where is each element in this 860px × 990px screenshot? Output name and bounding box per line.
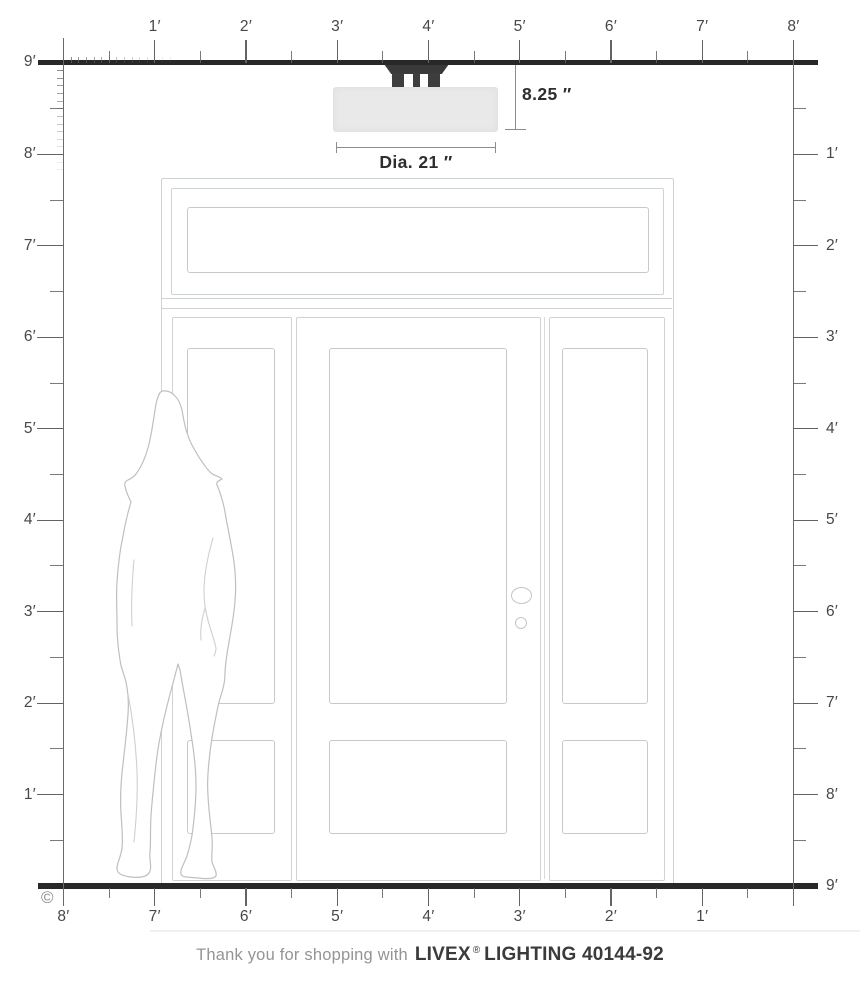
ruler-tick (57, 101, 63, 102)
footer-caption: Thank you for shopping with LIVEX ® LIGH… (0, 944, 860, 966)
ruler-label: 8′ (779, 17, 809, 37)
ruler-tick (170, 57, 171, 63)
ruler-label: 7′ (826, 693, 838, 713)
ruler-tick (793, 291, 806, 292)
ruler-tick (78, 57, 79, 63)
ruler-tick (565, 51, 566, 63)
ruler-tick (50, 840, 63, 841)
ruler-tick (57, 93, 63, 94)
ruler-tick (291, 51, 292, 63)
ruler-tick (337, 888, 338, 906)
ruler-tick (101, 57, 102, 63)
ruler-tick (245, 888, 246, 906)
ruler-tick (565, 888, 566, 898)
ruler-tick (200, 51, 201, 63)
ruler-label: 7′ (140, 907, 170, 927)
ruler-label: 7′ (687, 17, 717, 37)
ruler-tick (37, 428, 63, 429)
right-ruler-floor-label: 9′ (826, 876, 838, 896)
ruler-tick (37, 520, 63, 521)
ruler-tick (793, 565, 806, 566)
page-edge-artifact (150, 930, 860, 932)
ruler-tick (702, 888, 703, 906)
ruler-label: 2′ (596, 907, 626, 927)
ruler-tick (57, 85, 63, 86)
ruler-tick (94, 57, 95, 63)
ruler-tick (37, 794, 63, 795)
ruler-label: 1′ (140, 17, 170, 37)
ruler-label: 5′ (505, 17, 535, 37)
ruler-tick (86, 57, 87, 63)
height-dimension-label: 8.25 ″ (522, 84, 572, 105)
door-upper-panel (329, 348, 507, 704)
ruler-tick (382, 888, 383, 898)
ruler-tick (71, 57, 72, 63)
ruler-tick (37, 245, 63, 246)
ruler-label: 8′ (49, 907, 79, 927)
ruler-tick (793, 245, 818, 246)
ruler-tick (519, 888, 520, 906)
ruler-label: 5′ (826, 510, 838, 530)
left-ruler-line (63, 38, 64, 906)
diameter-dimension-line (336, 147, 496, 148)
ruler-tick (147, 57, 148, 63)
ruler-label: 3′ (322, 17, 352, 37)
person-silhouette (98, 386, 268, 888)
ruler-tick (109, 57, 110, 63)
door-deadbolt-icon (515, 617, 527, 629)
ruler-tick (291, 888, 292, 898)
height-dimension-cap (505, 129, 526, 130)
ruler-tick (656, 51, 657, 63)
ruler-label: 2′ (8, 693, 36, 713)
ruler-tick (57, 78, 63, 79)
ruler-label: 6′ (596, 17, 626, 37)
ruler-label: 4′ (414, 17, 444, 37)
height-dimension-line (515, 65, 516, 130)
footer-thanks-text: Thank you for shopping with (196, 946, 408, 965)
ruler-tick (793, 200, 806, 201)
ruler-tick (154, 57, 155, 63)
ruler-tick (50, 748, 63, 749)
ruler-tick (428, 40, 429, 63)
ruler-tick (57, 169, 63, 170)
ruler-tick (793, 474, 806, 475)
ruler-tick (37, 703, 63, 704)
ruler-tick (57, 139, 63, 140)
ruler-tick (793, 748, 806, 749)
ruler-tick (37, 611, 63, 612)
right-sidelight-window (562, 348, 648, 704)
ruler-tick (50, 474, 63, 475)
transom-divider-line (161, 298, 672, 299)
ruler-tick (57, 124, 63, 125)
ruler-tick (162, 57, 163, 63)
ruler-tick (57, 116, 63, 117)
ruler-tick (50, 200, 63, 201)
ruler-label: 6′ (826, 602, 838, 622)
left-ruler-origin-label: 9′ (8, 52, 36, 72)
ruler-label: 6′ (8, 327, 36, 347)
ruler-tick (793, 520, 818, 521)
copyright-icon: © (41, 888, 54, 908)
ruler-label: 6′ (231, 907, 261, 927)
ruler-tick (793, 840, 806, 841)
door-jamb-line (544, 317, 545, 879)
transom-window (187, 207, 649, 273)
ruler-label: 1′ (826, 144, 838, 164)
ruler-tick (57, 146, 63, 147)
ruler-tick (793, 337, 818, 338)
ruler-label: 5′ (8, 419, 36, 439)
diameter-dimension-label: Dia. 21 ″ (336, 152, 496, 173)
ruler-tick (50, 657, 63, 658)
ruler-tick (793, 794, 818, 795)
person-outline (117, 391, 236, 879)
registered-trademark-icon: ® (473, 945, 480, 956)
door-lower-panel (329, 740, 507, 834)
ruler-tick (382, 51, 383, 63)
ruler-tick (200, 888, 201, 898)
ruler-tick (793, 657, 806, 658)
ruler-tick (109, 888, 110, 898)
ruler-label: 1′ (8, 785, 36, 805)
ruler-tick (57, 70, 63, 71)
fixture-stem (392, 73, 404, 88)
ruler-tick (474, 51, 475, 63)
ruler-tick (139, 57, 140, 63)
ruler-tick (124, 57, 125, 63)
footer-brand-name: LIVEX (415, 944, 471, 966)
ruler-tick (793, 108, 806, 109)
ruler-label: 3′ (505, 907, 535, 927)
ruler-tick (610, 40, 611, 63)
fixture-shade (333, 87, 498, 132)
fixture-stem (428, 73, 440, 88)
ruler-label: 3′ (8, 602, 36, 622)
door-knob-icon (511, 587, 532, 604)
ruler-tick (702, 40, 703, 63)
ruler-label: 4′ (826, 419, 838, 439)
ruler-tick (37, 337, 63, 338)
ruler-tick (793, 383, 806, 384)
ruler-tick (50, 383, 63, 384)
ruler-label: 3′ (826, 327, 838, 347)
transom-divider-line (161, 308, 672, 309)
ruler-tick (793, 703, 818, 704)
ruler-label: 2′ (826, 236, 838, 256)
ruler-tick (747, 51, 748, 63)
ruler-label: 1′ (687, 907, 717, 927)
right-ruler-line (793, 63, 794, 906)
ruler-tick (245, 40, 246, 63)
ruler-tick (57, 108, 63, 109)
size-comparison-diagram: 8.25 ″ Dia. 21 ″ 9′ 9′ © Thank you for s… (0, 0, 860, 990)
right-sidelight-lower-panel (562, 740, 648, 834)
ruler-label: 8′ (8, 144, 36, 164)
ruler-tick (656, 888, 657, 898)
ruler-tick (793, 40, 794, 63)
ruler-label: 4′ (414, 907, 444, 927)
ruler-tick (428, 888, 429, 906)
footer-product-code: LIGHTING 40144-92 (484, 944, 664, 966)
ruler-tick (116, 57, 117, 63)
ruler-tick (57, 154, 63, 155)
ruler-tick (50, 291, 63, 292)
ruler-tick (50, 565, 63, 566)
ruler-tick (132, 57, 133, 63)
ruler-tick (154, 888, 155, 906)
ruler-tick (793, 611, 818, 612)
ruler-tick (57, 131, 63, 132)
ruler-tick (57, 162, 63, 163)
ruler-label: 2′ (231, 17, 261, 37)
ruler-tick (610, 888, 611, 906)
ruler-tick (519, 40, 520, 63)
ruler-label: 7′ (8, 236, 36, 256)
ruler-tick (337, 40, 338, 63)
ruler-tick (747, 888, 748, 898)
ruler-label: 4′ (8, 510, 36, 530)
ruler-tick (474, 888, 475, 898)
ruler-tick (793, 428, 818, 429)
ruler-label: 5′ (322, 907, 352, 927)
fixture-stem (413, 73, 420, 88)
ruler-tick (793, 154, 818, 155)
ruler-label: 8′ (826, 785, 838, 805)
